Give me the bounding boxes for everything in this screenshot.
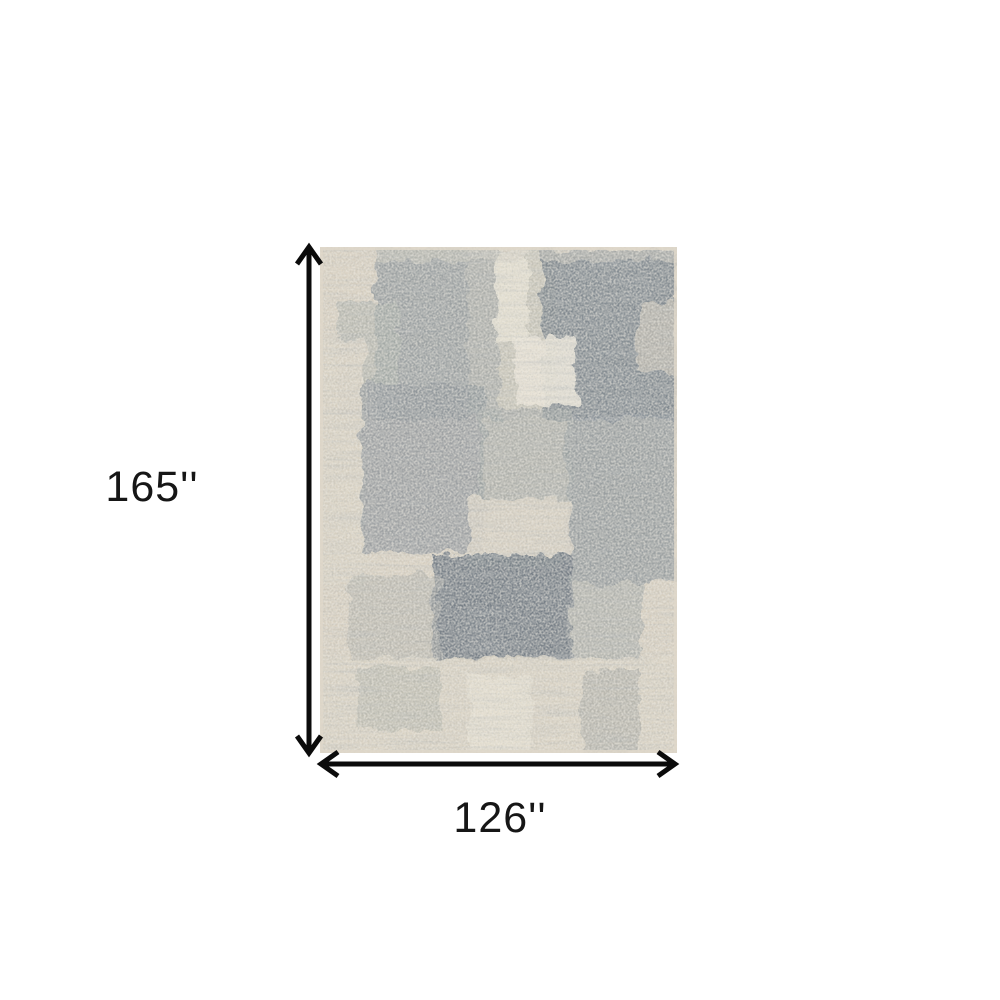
width-dimension-label: 126'' [435, 791, 565, 845]
width-arrow-head-left [321, 752, 338, 776]
height-dimension-label: 165'' [87, 460, 217, 514]
width-dimension-arrow [321, 752, 675, 776]
height-arrow-head-bottom [297, 736, 321, 753]
rug-product-image [320, 247, 677, 753]
width-arrow-head-right [658, 752, 675, 776]
rug-light-speckle [320, 247, 677, 753]
height-dimension-arrow [297, 247, 321, 753]
dimension-diagram: 165'' 126'' [0, 0, 1000, 1000]
height-arrow-head-top [297, 247, 321, 264]
